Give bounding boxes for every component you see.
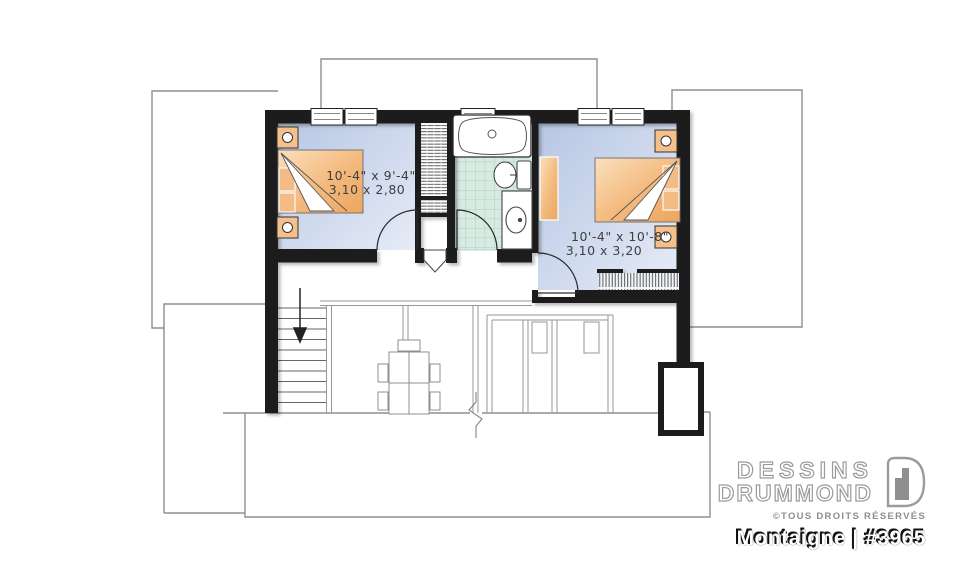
- brand-name-line2: DRUMMOND: [718, 482, 873, 505]
- staircase: [278, 288, 326, 403]
- linen-hatch: [421, 200, 447, 213]
- bedroom1-wardrobe-hatch: [421, 123, 447, 196]
- brand-rights: ©TOUS DROITS RÉSERVÉS: [773, 511, 926, 522]
- bedroom2-dim-metric: 3,10 x 3,20: [566, 243, 643, 258]
- deck-outline: [223, 412, 710, 517]
- stairs-down-arrow: [294, 288, 306, 342]
- plan-model-number: Montaigne | #3965: [737, 527, 926, 551]
- lower-level-lines: [320, 301, 613, 438]
- drummond-door-icon: [882, 456, 926, 508]
- lower-level-dining-set: [378, 340, 440, 414]
- brand-name-line1: DESSINS: [737, 459, 873, 482]
- dresser: [540, 157, 558, 220]
- bedroom2-closet-hatch: [599, 273, 679, 290]
- toilet: [494, 161, 531, 189]
- bathtub: [453, 115, 531, 157]
- chimney: [661, 365, 701, 433]
- bedroom2-dim-imperial: 10'-4" x 10'-8": [571, 229, 669, 244]
- bedroom1-dim-imperial: 10'-4" x 9'-4": [326, 168, 416, 183]
- floor-plan-page: 10'-4" x 9'-4" 3,10 x 2,80 10'-4" x 10'-…: [0, 0, 960, 569]
- bedroom1-dim-metric: 3,10 x 2,80: [329, 182, 406, 197]
- linen-door: [424, 250, 446, 272]
- vanity-sink: [502, 191, 532, 249]
- branding-block: DESSINS DRUMMOND ©TOUS DROITS RÉSERVÉS M…: [718, 456, 926, 551]
